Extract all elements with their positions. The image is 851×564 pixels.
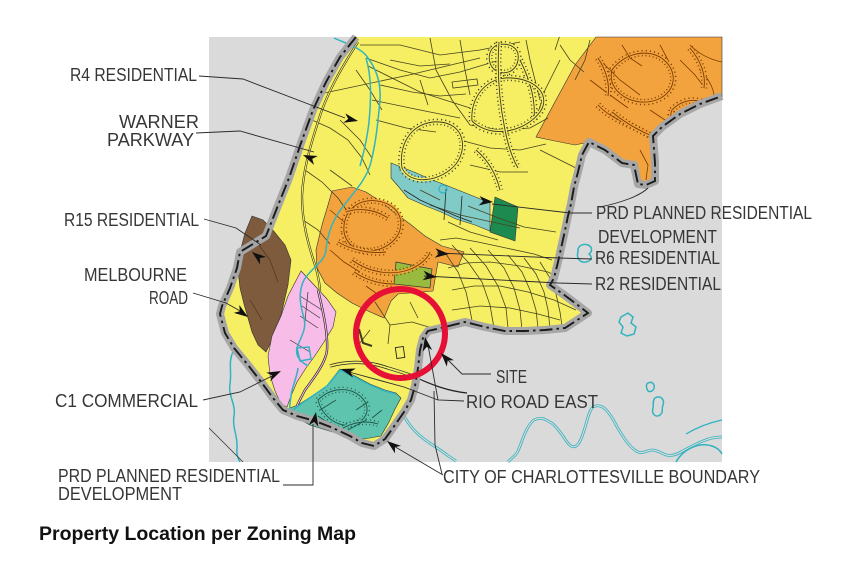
svg-text:PARKWAY: PARKWAY	[107, 130, 194, 150]
svg-text:Property Location per Zoning M: Property Location per Zoning Map	[39, 524, 356, 545]
svg-text:SITE: SITE	[496, 367, 527, 387]
svg-text:PRD PLANNED RESIDENTIAL: PRD PLANNED RESIDENTIAL	[58, 466, 280, 486]
svg-text:DEVELOPMENT: DEVELOPMENT	[598, 227, 717, 247]
svg-text:R4 RESIDENTIAL: R4 RESIDENTIAL	[70, 65, 197, 85]
svg-text:RIO ROAD EAST: RIO ROAD EAST	[466, 392, 598, 412]
svg-text:DEVELOPMENT: DEVELOPMENT	[58, 484, 182, 504]
svg-text:C1 COMMERCIAL: C1 COMMERCIAL	[55, 391, 198, 411]
svg-text:ROAD: ROAD	[149, 288, 188, 308]
svg-text:R2 RESIDENTIAL: R2 RESIDENTIAL	[595, 274, 721, 294]
svg-text:R6 RESIDENTIAL: R6 RESIDENTIAL	[595, 248, 720, 268]
svg-text:R15 RESIDENTIAL: R15 RESIDENTIAL	[64, 210, 199, 230]
svg-text:WARNER: WARNER	[119, 112, 199, 132]
svg-text:PRD PLANNED RESIDENTIAL: PRD PLANNED RESIDENTIAL	[596, 203, 812, 223]
svg-text:CITY OF CHARLOTTESVILLE BOUNDA: CITY OF CHARLOTTESVILLE BOUNDARY	[443, 467, 760, 487]
svg-text:MELBOURNE: MELBOURNE	[84, 265, 187, 285]
